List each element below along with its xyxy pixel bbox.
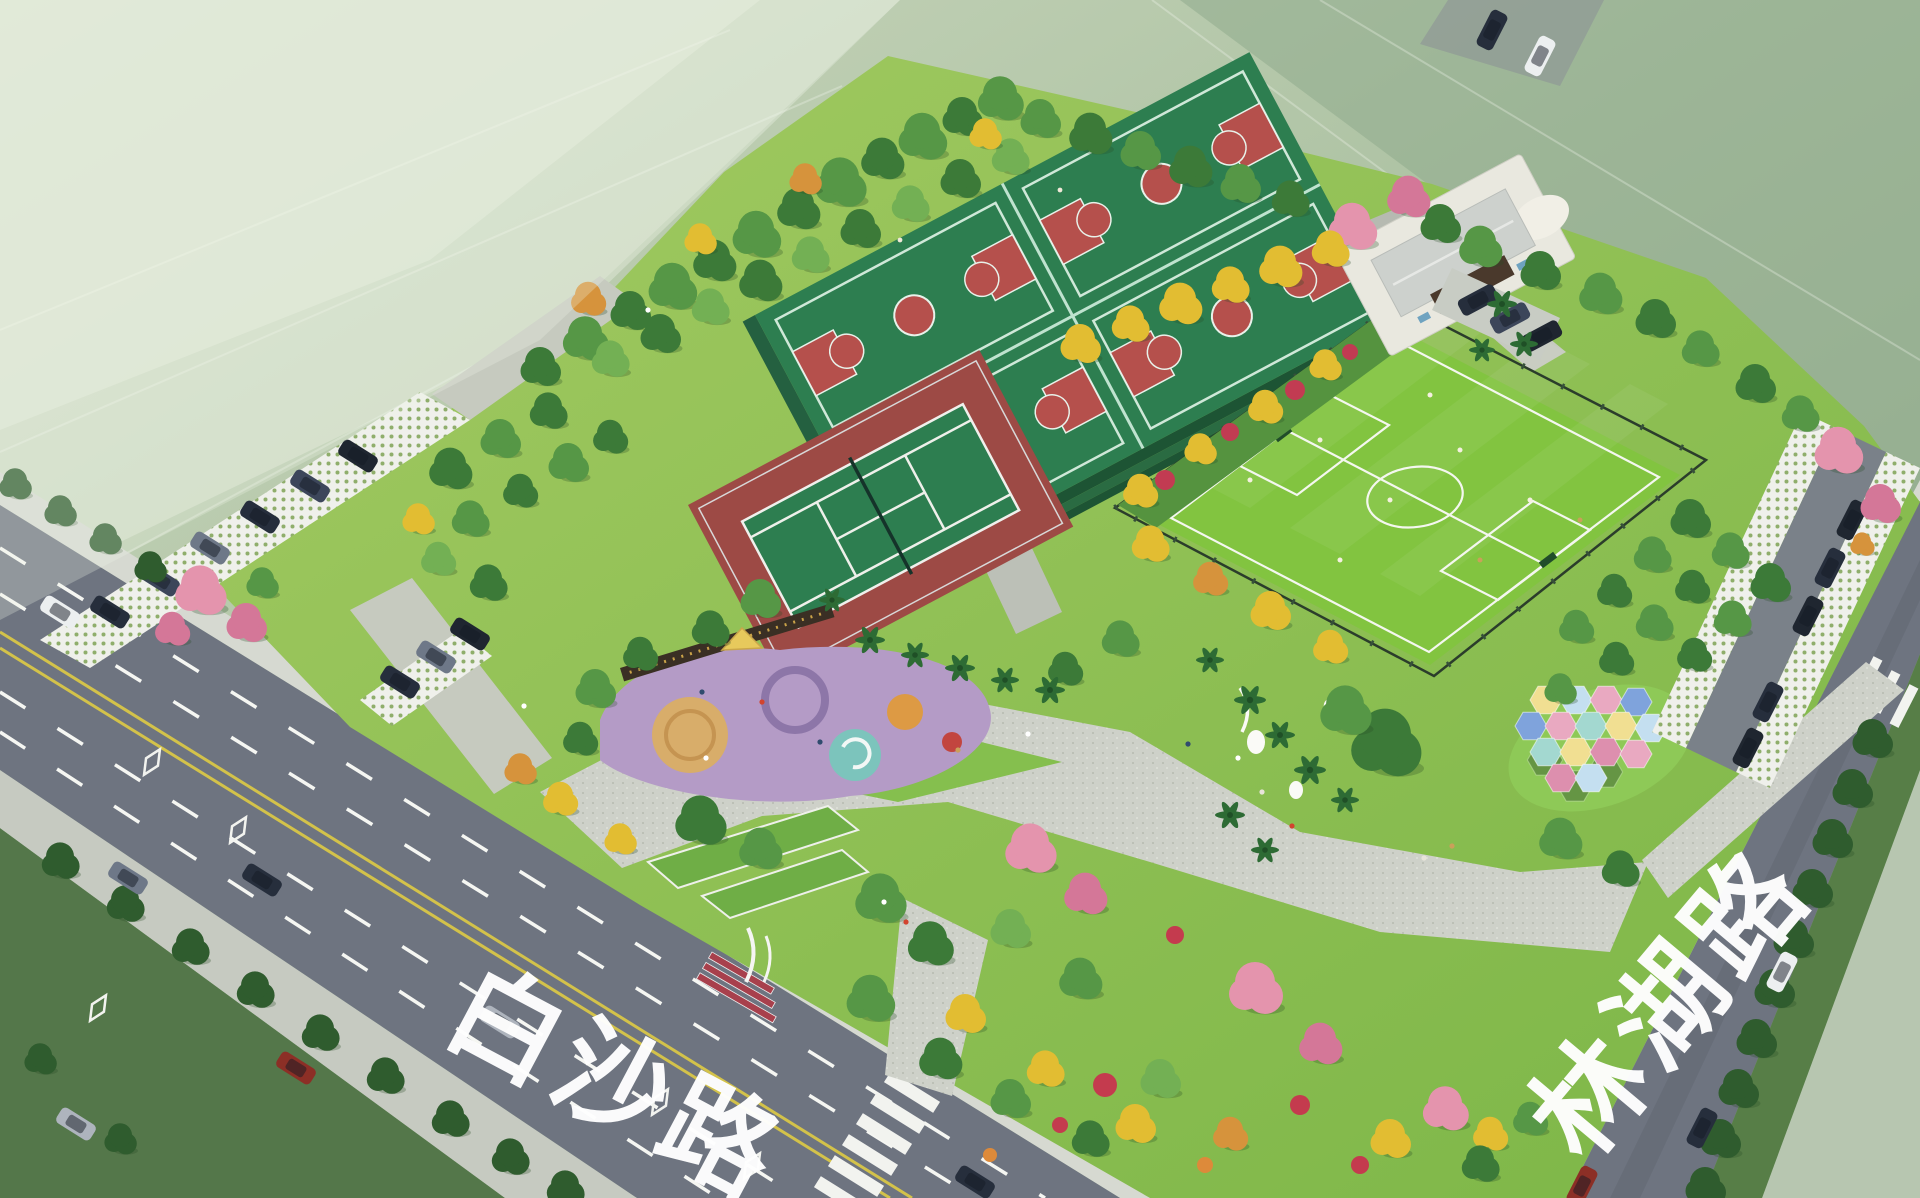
egg-sculpture [1247, 730, 1265, 754]
person-figure [1058, 188, 1063, 193]
red-flower-mass [1290, 1095, 1310, 1115]
sand-circle [652, 697, 728, 773]
person-figure [903, 919, 908, 924]
person-figure [759, 699, 764, 704]
red-flower-mass [1351, 1156, 1369, 1174]
person-figure [703, 755, 708, 760]
person-figure [699, 689, 704, 694]
red-flower-mass [1221, 423, 1239, 441]
orange-flower-mass [983, 1148, 997, 1162]
red-flower-mass [1342, 344, 1358, 360]
person-figure [817, 739, 822, 744]
person-figure [1289, 823, 1294, 828]
red-flower-mass [1285, 380, 1305, 400]
person-figure [898, 238, 903, 243]
play-pad [887, 694, 923, 730]
red-flower-mass [1155, 470, 1175, 490]
person-figure [1421, 855, 1426, 860]
person-figure [1259, 789, 1264, 794]
aerial-scene: 白沙路 林湖路 [0, 0, 1920, 1198]
splash-circle [829, 729, 881, 781]
red-flower-mass [1093, 1073, 1117, 1097]
person-figure [1025, 731, 1030, 736]
red-flower-mass [1052, 1117, 1068, 1133]
red-flower-mass [1166, 926, 1184, 944]
person-figure [1449, 843, 1454, 848]
person-figure [1185, 741, 1190, 746]
park-masterplan-rendering: 白沙路 林湖路 [0, 0, 1920, 1198]
person-figure [521, 703, 526, 708]
person-figure [645, 307, 650, 312]
person-figure [881, 899, 886, 904]
person-figure [955, 747, 960, 752]
egg-sculpture [1289, 781, 1303, 799]
person-figure [1235, 755, 1240, 760]
orange-flower-mass [1197, 1157, 1213, 1173]
